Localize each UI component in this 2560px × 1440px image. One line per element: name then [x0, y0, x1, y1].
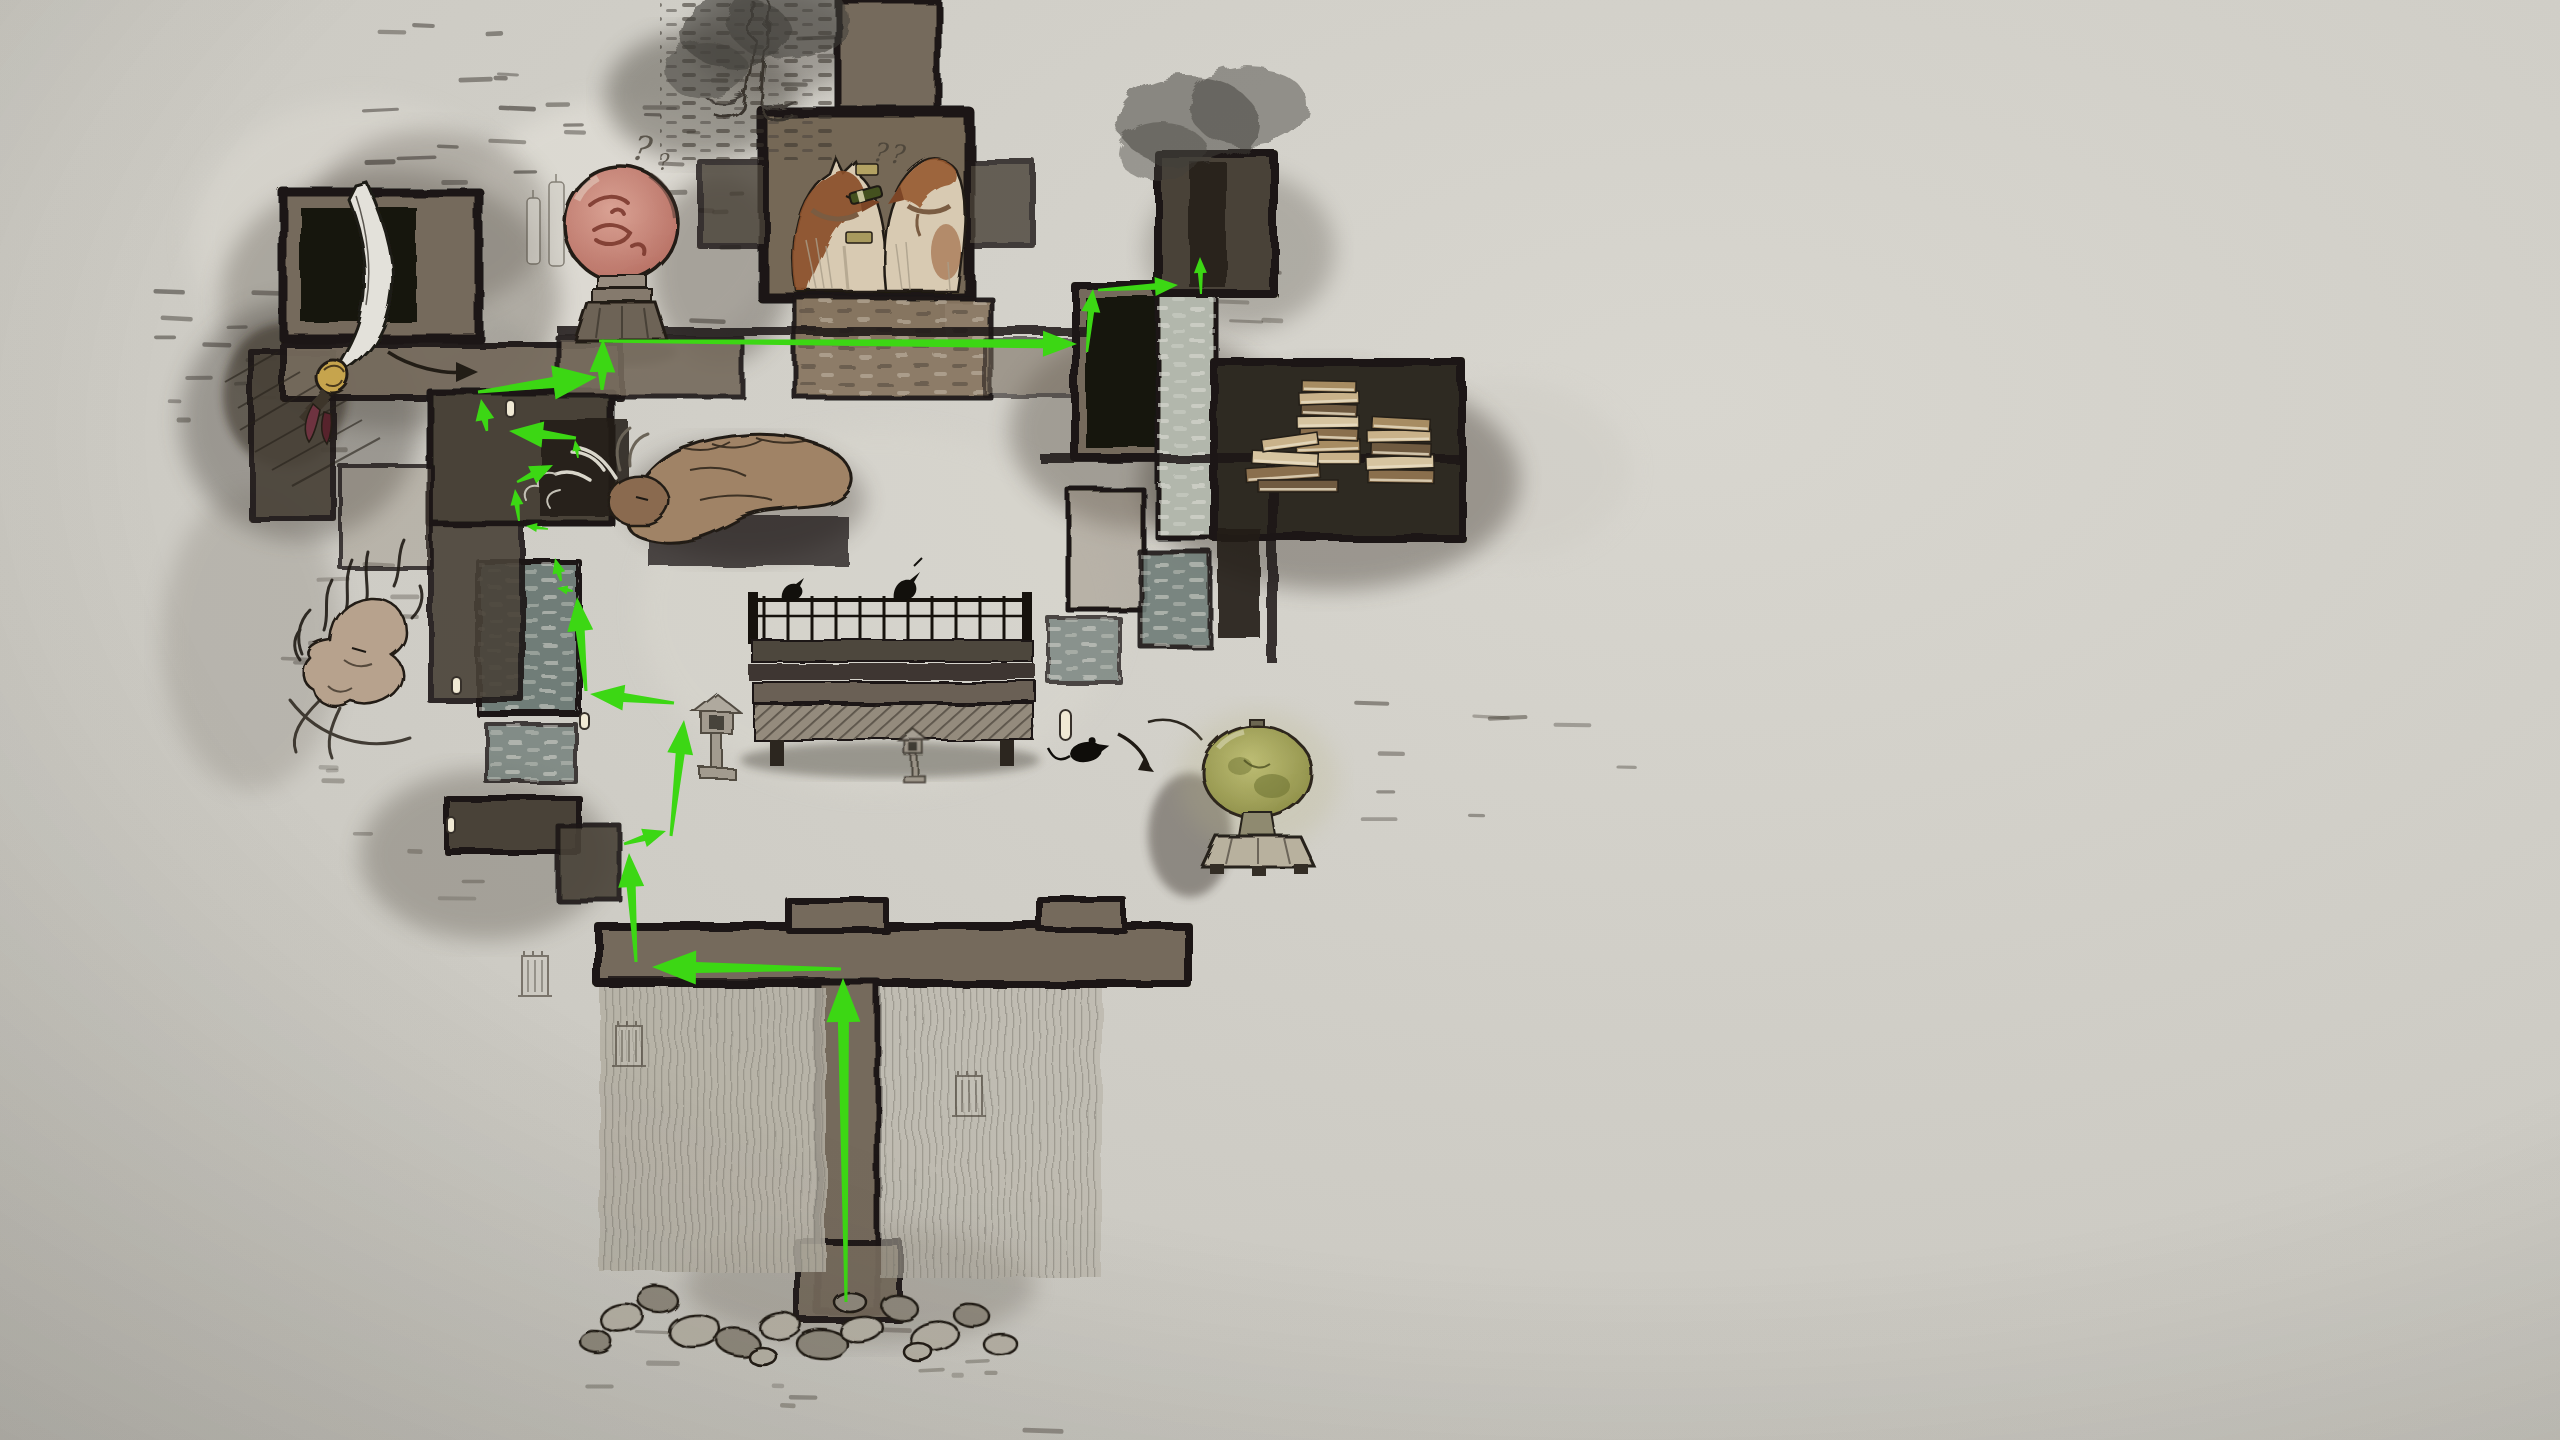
rock	[983, 1333, 1016, 1355]
ink-dash	[234, 381, 251, 385]
ink-dash	[513, 170, 537, 174]
watchtower-sketch	[952, 1071, 986, 1116]
book	[1252, 450, 1319, 466]
wash-blob	[162, 490, 342, 790]
brick-texture	[1048, 618, 1120, 682]
ink-dash	[364, 159, 395, 165]
map-room-tr-room-inner	[1086, 298, 1156, 448]
ink-dash	[984, 1371, 997, 1375]
ink-dash	[1376, 790, 1395, 793]
ink-dash	[202, 342, 231, 347]
brick-texture	[1140, 552, 1210, 646]
book	[1302, 381, 1356, 393]
ink-dash	[154, 336, 176, 340]
map-room-kennel-arm-right	[967, 162, 1033, 246]
ink-dash	[168, 399, 182, 403]
brick-texture	[880, 988, 1102, 1278]
game-map-screenshot: ? ? ??	[0, 0, 2560, 1440]
brick-texture	[1158, 286, 1216, 538]
rock	[904, 1343, 932, 1361]
ink-dash	[1361, 817, 1398, 821]
ink-dash	[564, 130, 586, 135]
book	[1372, 416, 1431, 431]
door-marker	[506, 400, 515, 417]
door-marker	[580, 713, 589, 729]
ink-dash	[585, 1384, 613, 1388]
book	[1371, 442, 1431, 457]
ink-dash	[407, 849, 422, 854]
book	[1368, 469, 1434, 483]
wall-line	[610, 978, 830, 985]
ink-dash	[1261, 318, 1283, 324]
kennel-question-marks: ??	[870, 137, 907, 170]
ink-dash	[493, 76, 507, 81]
ink-dash	[644, 113, 662, 117]
ink-dash	[780, 1403, 796, 1408]
ink-dash	[789, 1395, 818, 1400]
map-room-room-railing	[340, 466, 432, 568]
ink-dash	[772, 1383, 785, 1388]
ink-dash	[545, 102, 570, 107]
ink-dash	[1553, 723, 1591, 728]
wash-blob	[740, 742, 1040, 778]
door-marker	[452, 677, 461, 694]
map-room-bar-notch-2	[1040, 900, 1124, 930]
map-room-tr-slab	[1218, 528, 1260, 638]
ink-dash	[646, 1361, 680, 1366]
ink-dash	[185, 376, 213, 380]
foliage-blob	[1117, 122, 1207, 182]
map-room-tr-tower-inner	[1190, 162, 1226, 288]
ink-dash	[563, 123, 584, 127]
map-room-kennel-arm-left	[700, 162, 766, 246]
foliage-blob	[664, 42, 748, 98]
map-room-corridor-main	[558, 338, 742, 396]
rock	[834, 1292, 866, 1312]
map-room-chimney	[838, 0, 938, 118]
ink-dash	[177, 417, 191, 422]
ink-dash	[438, 896, 477, 900]
ink-dash	[321, 778, 344, 783]
map-room-room-low-2	[558, 826, 620, 900]
ink-dash	[378, 30, 407, 35]
map-canvas: ? ? ??	[0, 0, 2560, 1440]
book	[1258, 480, 1338, 492]
ink-dash	[390, 594, 419, 599]
ink-dash	[227, 325, 248, 329]
ink-dash	[952, 1373, 964, 1378]
wall-line	[1267, 463, 1277, 663]
ink-dash	[326, 768, 339, 772]
door-marker	[447, 817, 455, 833]
door-marker	[1060, 710, 1071, 740]
rock	[748, 1347, 776, 1365]
ink-dash	[485, 31, 503, 37]
map-room-room-left-mid	[430, 524, 522, 700]
ink-dash	[462, 880, 485, 883]
ink-dash	[1616, 765, 1637, 769]
brick-texture	[795, 298, 991, 398]
map-room-tr-mid-room-1	[1068, 490, 1144, 610]
ink-dash	[353, 832, 373, 836]
foliage-blob	[1188, 66, 1308, 146]
ink-dash	[1378, 751, 1405, 756]
ink-dash	[441, 180, 468, 185]
watchtower-sketch	[518, 951, 552, 996]
map-room-corridor-main-fade	[985, 340, 1085, 396]
brick-texture	[486, 724, 576, 782]
ink-dash	[1468, 814, 1485, 818]
map-room-bar-notch-1	[788, 900, 886, 930]
watchtower-sketch	[612, 1021, 646, 1066]
